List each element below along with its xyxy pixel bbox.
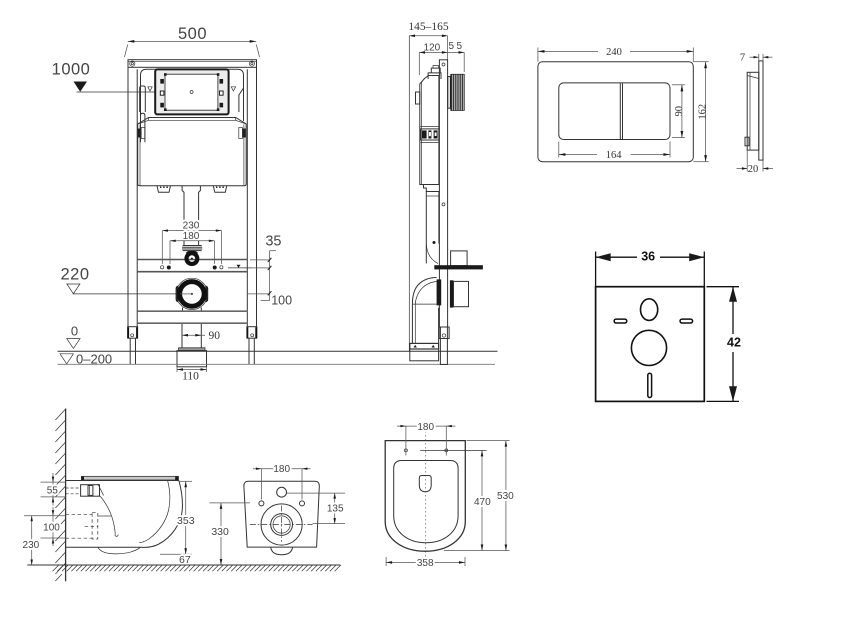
svg-text:120: 120 bbox=[424, 42, 441, 53]
svg-text:135: 135 bbox=[327, 504, 344, 515]
svg-text:35: 35 bbox=[265, 234, 281, 250]
svg-text:358: 358 bbox=[417, 558, 434, 569]
svg-text:90: 90 bbox=[209, 330, 221, 342]
svg-text:55: 55 bbox=[47, 485, 59, 496]
svg-text:110: 110 bbox=[182, 370, 199, 382]
svg-text:55: 55 bbox=[448, 41, 464, 52]
svg-text:230: 230 bbox=[183, 220, 200, 231]
svg-text:100: 100 bbox=[43, 522, 60, 533]
svg-text:330: 330 bbox=[211, 526, 229, 538]
svg-text:180: 180 bbox=[417, 422, 434, 433]
svg-text:42: 42 bbox=[727, 335, 741, 349]
svg-text:470: 470 bbox=[474, 497, 491, 508]
svg-text:20: 20 bbox=[748, 164, 759, 175]
svg-text:100: 100 bbox=[271, 294, 292, 308]
svg-text:353: 353 bbox=[177, 515, 195, 527]
svg-text:0: 0 bbox=[71, 324, 78, 339]
svg-text:7: 7 bbox=[740, 52, 745, 63]
svg-text:530: 530 bbox=[497, 491, 514, 502]
svg-text:180: 180 bbox=[273, 464, 290, 475]
svg-text:90: 90 bbox=[674, 106, 685, 117]
svg-text:162: 162 bbox=[698, 104, 709, 120]
svg-text:36: 36 bbox=[641, 249, 655, 263]
svg-text:67: 67 bbox=[179, 554, 191, 566]
svg-text:145–165: 145–165 bbox=[408, 21, 449, 33]
svg-text:500: 500 bbox=[178, 25, 207, 43]
svg-text:220: 220 bbox=[60, 266, 89, 284]
svg-text:230: 230 bbox=[23, 540, 40, 551]
svg-text:240: 240 bbox=[606, 47, 622, 58]
svg-text:164: 164 bbox=[606, 150, 623, 161]
svg-text:1000: 1000 bbox=[52, 61, 91, 79]
